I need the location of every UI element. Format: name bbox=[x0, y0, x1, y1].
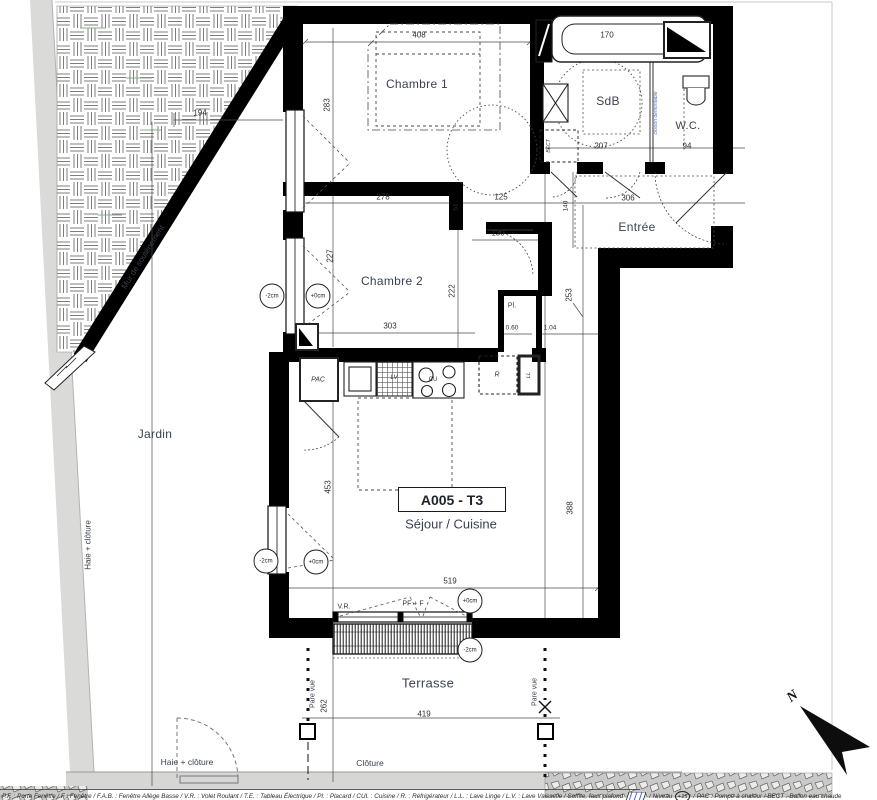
dim-419: 419 bbox=[417, 710, 430, 719]
dim-388: 388 bbox=[566, 501, 575, 514]
dim-262: 262 bbox=[320, 699, 329, 712]
dim-283: 283 bbox=[323, 98, 332, 111]
kitchen-clearance bbox=[358, 398, 452, 490]
window-type-label: PF + F bbox=[402, 601, 423, 608]
dim-408: 408 bbox=[412, 31, 425, 40]
unit-code-box: A005 - T3 bbox=[398, 487, 506, 512]
dim-222: 222 bbox=[448, 284, 457, 297]
legend-niveau-label: / Niveau bbox=[649, 793, 672, 800]
dim-303: 303 bbox=[383, 322, 396, 331]
dim-519: 519 bbox=[443, 577, 456, 586]
dim-194: 194 bbox=[193, 109, 206, 118]
dim-207: 207 bbox=[594, 142, 607, 151]
entree-soffit bbox=[575, 176, 714, 248]
level-marker: +0cm bbox=[306, 284, 331, 309]
dim-61: 61 bbox=[453, 203, 460, 210]
fence-latch bbox=[539, 701, 551, 713]
level-marker: +0cm bbox=[458, 589, 483, 614]
unit-type-label: Séjour / Cuisine bbox=[405, 517, 497, 532]
hedge-label-side: Haie + clôture bbox=[84, 520, 93, 570]
partition-label: cloison démontable bbox=[653, 91, 659, 134]
hedge-label-bottom: Haie + clôture bbox=[161, 757, 214, 767]
dim-060: 0.60 bbox=[506, 325, 519, 332]
dim-140: 140 bbox=[563, 201, 570, 212]
fixed-panel bbox=[296, 324, 318, 350]
dim-453: 453 bbox=[324, 480, 333, 493]
legend: P.F. : Porte Fenêtre / F : Fenêtre / F.A… bbox=[2, 791, 875, 800]
level-marker: +0cm bbox=[304, 550, 329, 575]
hob-label: CU bbox=[429, 377, 438, 383]
fence-label: Clôture bbox=[356, 758, 383, 768]
bathroom-sink bbox=[543, 84, 568, 122]
dim-125: 125 bbox=[494, 193, 507, 202]
legend-niveau-value: +15 bbox=[675, 791, 690, 800]
level-marker: -2cm bbox=[458, 638, 483, 663]
pac-label: PAC bbox=[311, 377, 325, 384]
room-label-jardin: Jardin bbox=[138, 427, 172, 441]
walls bbox=[269, 6, 733, 638]
screen-label-left: Pare vue bbox=[310, 680, 317, 708]
toilet bbox=[683, 76, 709, 105]
dishwasher-label: LV bbox=[390, 375, 397, 381]
dim-227: 227 bbox=[326, 249, 335, 262]
shutter-label: V.R. bbox=[338, 604, 351, 611]
terrace-step bbox=[333, 624, 472, 658]
room-label-wc: W.C. bbox=[675, 120, 700, 132]
wc-shelf bbox=[664, 22, 710, 58]
level-marker: -2cm bbox=[260, 284, 285, 309]
level-marker: -2cm bbox=[254, 549, 279, 574]
dim-94: 94 bbox=[683, 142, 692, 151]
kitchen-counter bbox=[344, 356, 539, 398]
dim-278: 278 bbox=[376, 193, 389, 202]
legend-text-2: / PAC : Pompe à chaleur / BECT : Ballon … bbox=[693, 793, 841, 800]
soffit-hatch-swatch bbox=[626, 792, 646, 800]
floor-plan-page: Chambre 1 Chambre 2 SdB W.C. Entrée Jard… bbox=[0, 0, 877, 800]
dim-130: 130 bbox=[491, 229, 504, 238]
room-label-chambre2: Chambre 2 bbox=[361, 274, 423, 288]
legend-text-1: P.F. : Porte Fenêtre / F : Fenêtre / F.A… bbox=[2, 793, 623, 800]
water-heater-label: BECT bbox=[546, 139, 552, 152]
north-arrow bbox=[800, 706, 870, 775]
fridge-label: R bbox=[494, 372, 499, 379]
closet-label: Pl. bbox=[508, 303, 516, 310]
fence-post-left bbox=[300, 724, 315, 739]
dim-253: 253 bbox=[565, 288, 574, 301]
room-label-entree: Entrée bbox=[618, 220, 655, 234]
doors bbox=[302, 172, 727, 450]
dimension-lines bbox=[152, 28, 745, 786]
dim-104: 1.04 bbox=[544, 325, 557, 332]
dim-306: 306 bbox=[621, 194, 634, 203]
room-label-sdb: SdB bbox=[596, 94, 620, 108]
room-label-chambre1: Chambre 1 bbox=[386, 77, 448, 91]
washer-label: LL bbox=[526, 372, 532, 378]
room-label-terrasse: Terrasse bbox=[402, 676, 454, 691]
fence-post-right bbox=[538, 724, 553, 739]
duct bbox=[536, 20, 552, 62]
screen-label-right: Pare vue bbox=[532, 678, 539, 706]
dim-170: 170 bbox=[600, 31, 613, 40]
